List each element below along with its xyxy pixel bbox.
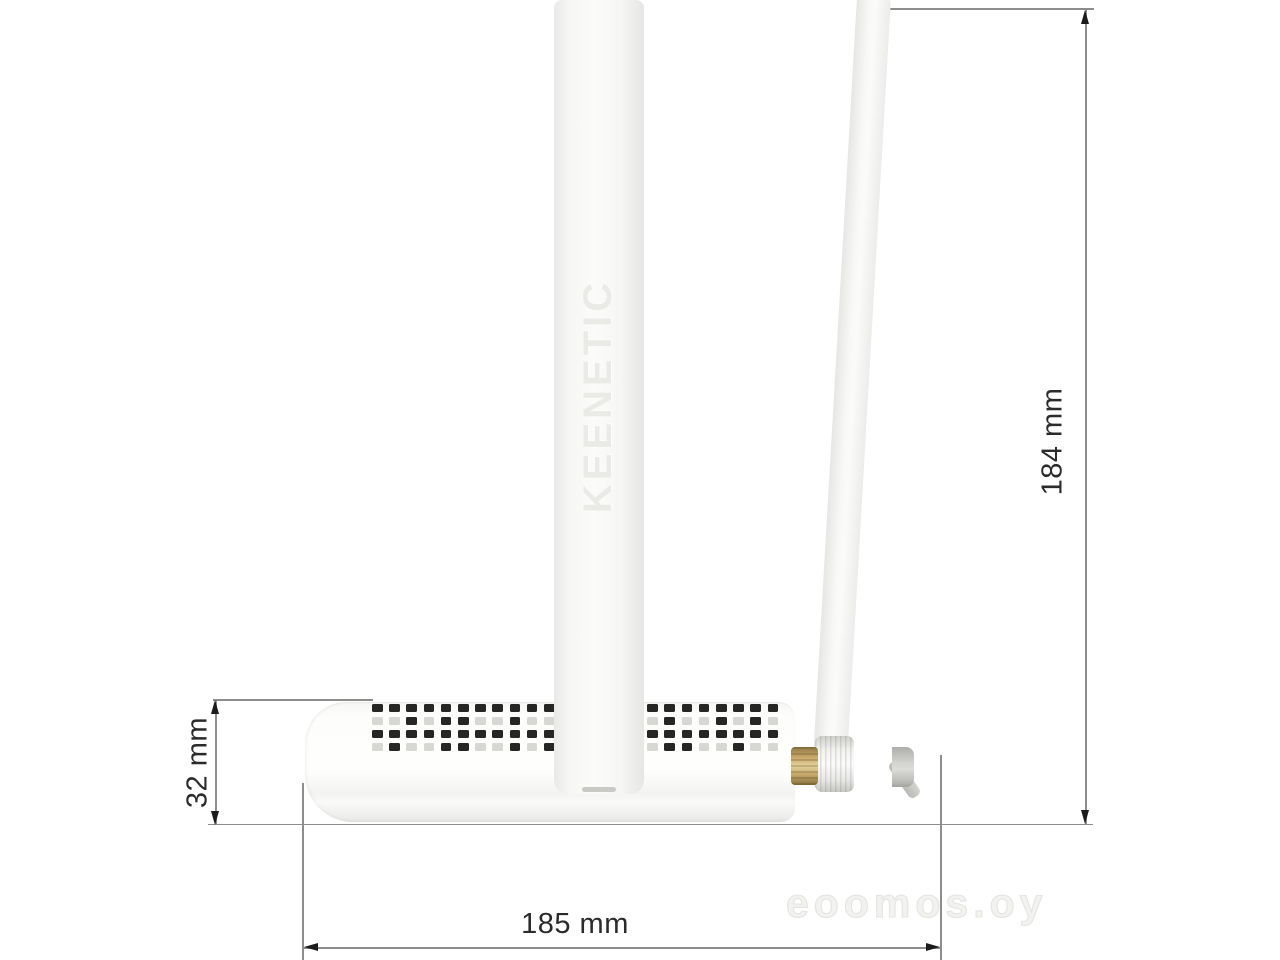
dimension-label-total-height: 184 mm	[1037, 382, 1070, 502]
vent-hole	[664, 730, 675, 738]
vent-hole	[716, 730, 727, 738]
vent-hole	[750, 717, 761, 725]
vent-hole	[699, 730, 710, 738]
vent-hole	[682, 717, 693, 725]
vent-hole	[647, 730, 658, 738]
dimension-line-total-height	[1085, 9, 1087, 825]
vent-hole	[750, 743, 761, 751]
vent-hole	[733, 704, 744, 712]
vent-hole	[527, 730, 538, 738]
antenna-joint	[852, 733, 896, 795]
figure-canvas: eoomos.oy 185 mm 184 mm 32 mm	[0, 0, 1280, 960]
dimension-line-width	[303, 947, 941, 949]
vent-hole	[424, 730, 435, 738]
extension-line-left	[302, 783, 304, 960]
vent-hole	[372, 704, 383, 712]
vent-hole	[406, 717, 417, 725]
vent-hole	[527, 743, 538, 751]
brass-connector-nut-icon	[791, 747, 818, 785]
vent-hole	[372, 717, 383, 725]
vent-hole	[664, 743, 675, 751]
vent-hole	[475, 717, 486, 725]
extension-line-bottom	[208, 824, 1093, 826]
vent-hole	[647, 704, 658, 712]
vent-hole	[716, 743, 727, 751]
vent-hole	[733, 743, 744, 751]
vent-hole	[424, 743, 435, 751]
vent-hole	[458, 704, 469, 712]
arrow-up-icon	[211, 700, 219, 714]
vent-hole	[768, 743, 779, 751]
extension-line-top	[889, 8, 1094, 10]
vent-hole	[716, 717, 727, 725]
vent-hole	[768, 730, 779, 738]
vent-hole	[475, 704, 486, 712]
vent-hole	[510, 717, 521, 725]
vent-hole	[372, 743, 383, 751]
extension-line-top	[213, 699, 373, 701]
vent-hole	[544, 743, 555, 751]
vent-hole	[406, 704, 417, 712]
vent-hole	[458, 743, 469, 751]
vent-hole	[664, 717, 675, 725]
vent-hole	[441, 743, 452, 751]
vent-hole	[664, 704, 675, 712]
vent-hole	[544, 704, 555, 712]
dimension-label-body-height: 32 mm	[182, 703, 215, 823]
arrow-left-icon	[304, 943, 318, 951]
vent-hole	[510, 743, 521, 751]
vent-hole	[682, 743, 693, 751]
vent-hole	[389, 743, 400, 751]
vent-hole	[492, 704, 503, 712]
vent-hole	[389, 704, 400, 712]
vent-hole	[716, 704, 727, 712]
vent-hole	[544, 717, 555, 725]
knurled-ring	[815, 736, 854, 792]
vent-hole	[682, 704, 693, 712]
vent-hole	[750, 704, 761, 712]
arrow-right-icon	[926, 943, 940, 951]
dimension-label-width: 185 mm	[515, 908, 635, 941]
vent-hole	[510, 730, 521, 738]
vent-hole	[733, 717, 744, 725]
vent-hole	[458, 717, 469, 725]
vent-hole	[768, 704, 779, 712]
vent-hole	[750, 730, 761, 738]
vent-hole	[441, 704, 452, 712]
vent-hole	[682, 730, 693, 738]
vent-hole	[406, 743, 417, 751]
vent-hole	[544, 730, 555, 738]
right-antenna	[811, 0, 891, 792]
vent-hole	[372, 730, 383, 738]
vent-hole	[699, 743, 710, 751]
vent-hole	[647, 717, 658, 725]
vent-hole	[492, 717, 503, 725]
center-antenna: KEENETIC	[554, 0, 644, 794]
vent-hole	[389, 730, 400, 738]
vent-hole	[441, 717, 452, 725]
antenna-hinge-notch	[582, 787, 616, 792]
arrow-down-icon	[211, 811, 219, 825]
vent-hole	[647, 743, 658, 751]
watermark-text: eoomos.oy	[786, 880, 1047, 927]
vent-hole	[389, 717, 400, 725]
vent-hole	[475, 730, 486, 738]
vent-hole	[424, 717, 435, 725]
arrow-down-icon	[1081, 810, 1089, 824]
vent-hole	[492, 743, 503, 751]
arrow-up-icon	[1081, 10, 1089, 24]
vent-hole	[492, 730, 503, 738]
vent-hole	[510, 704, 521, 712]
vent-hole	[733, 730, 744, 738]
vent-hole	[458, 730, 469, 738]
vent-hole	[768, 717, 779, 725]
vent-hole	[527, 717, 538, 725]
antenna-brand-text: KEENETIC	[576, 226, 622, 566]
vent-hole	[475, 743, 486, 751]
vent-hole	[424, 704, 435, 712]
vent-hole	[699, 704, 710, 712]
vent-hole	[406, 730, 417, 738]
vent-hole	[527, 704, 538, 712]
dimension-line-body-height	[215, 699, 217, 825]
extension-line-right	[940, 755, 942, 960]
vent-hole	[699, 717, 710, 725]
vent-hole	[441, 730, 452, 738]
